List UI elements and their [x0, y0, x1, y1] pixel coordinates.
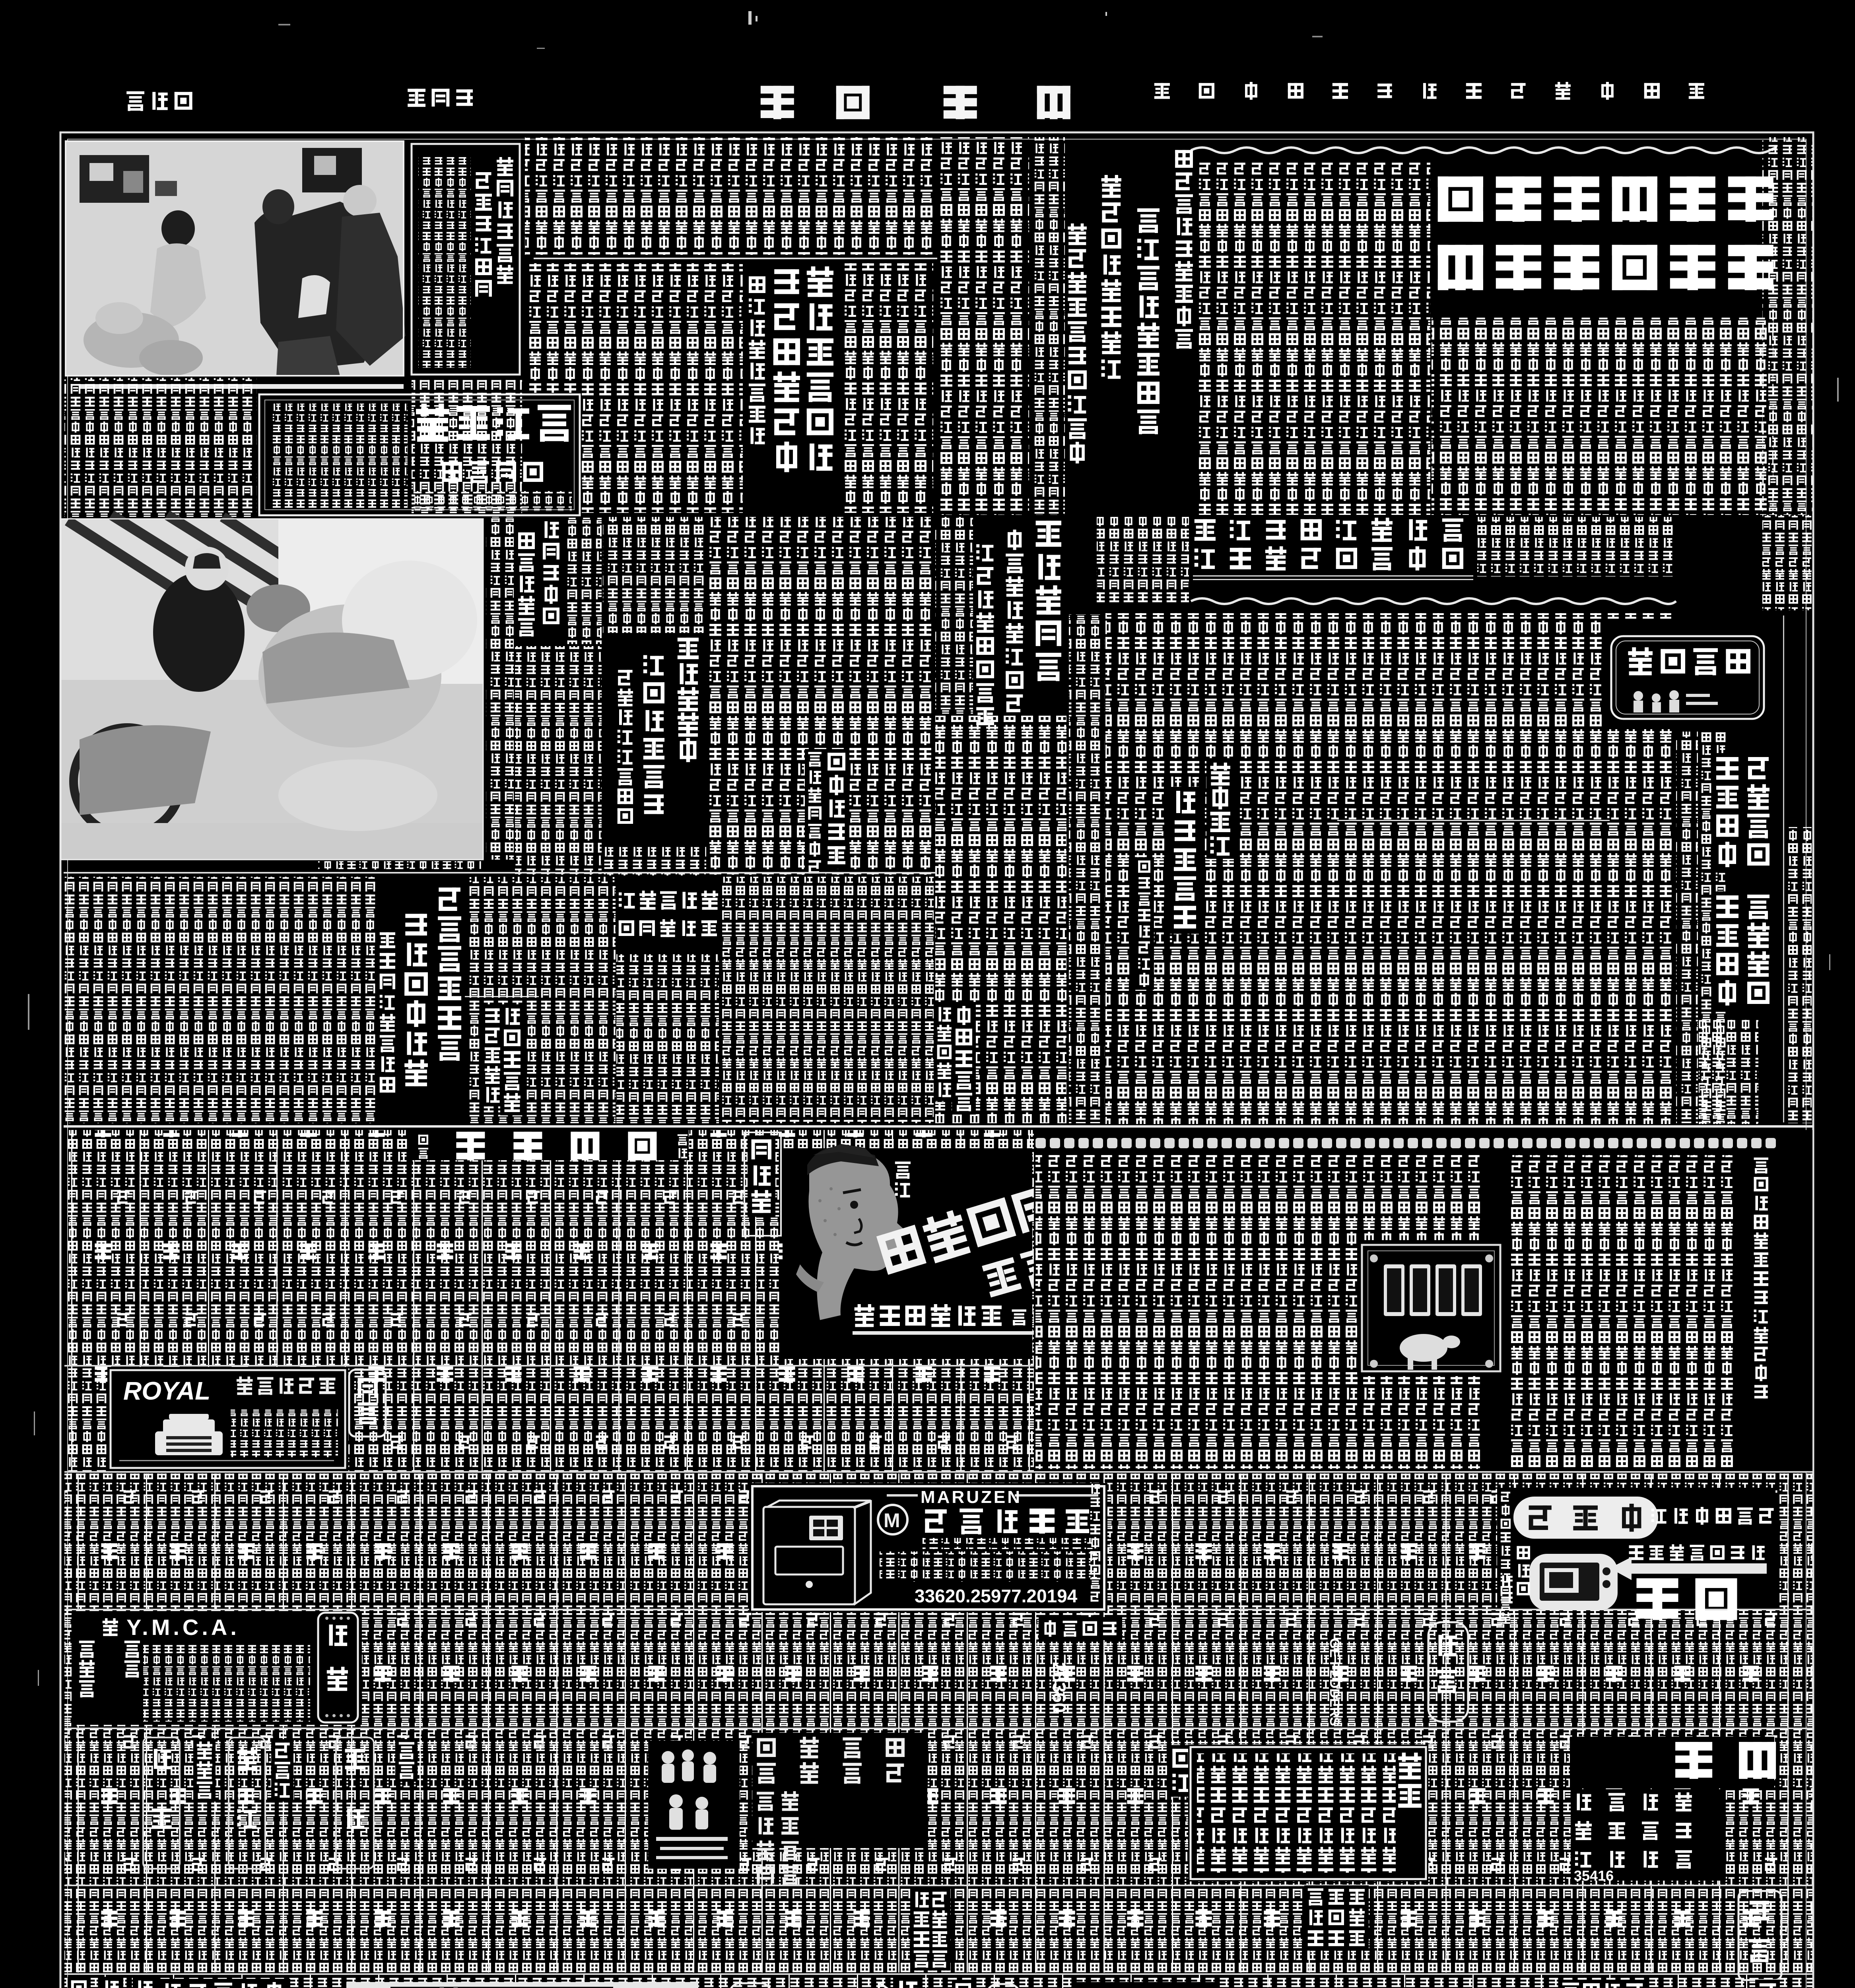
svg-text:GE FEDDERS: GE FEDDERS — [1327, 1638, 1342, 1726]
svg-text:Y.M.C.A.: Y.M.C.A. — [126, 1615, 240, 1640]
svg-text:35416: 35416 — [1574, 1868, 1614, 1884]
svg-text:M: M — [884, 1509, 900, 1532]
svg-text:MARUZEN: MARUZEN — [921, 1487, 1022, 1507]
svg-text:49944: 49944 — [870, 1982, 893, 1988]
svg-text:ROYAL: ROYAL — [123, 1376, 210, 1405]
svg-text:33620.25977.20194: 33620.25977.20194 — [915, 1586, 1078, 1606]
svg-text:28360: 28360 — [1049, 1662, 1070, 1713]
